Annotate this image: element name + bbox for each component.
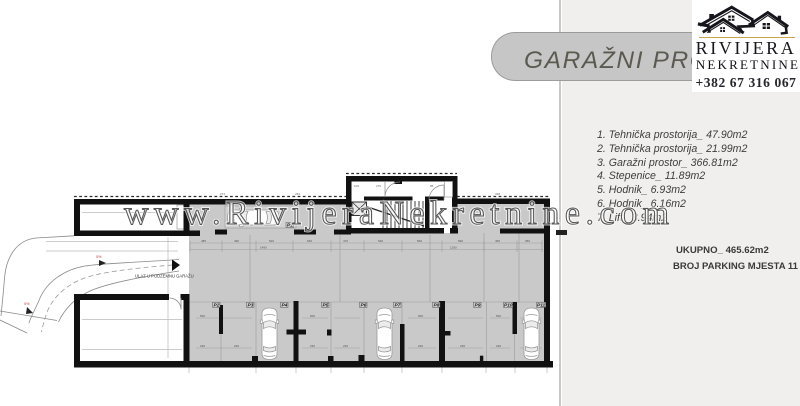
svg-text:5%: 5% (96, 255, 102, 259)
svg-text:230: 230 (234, 344, 239, 348)
svg-text:590: 590 (458, 239, 463, 243)
svg-text:500: 500 (496, 314, 501, 318)
svg-text:www.RivijeraNekretnine.com: www.RivijeraNekretnine.com (124, 195, 675, 232)
svg-text:85: 85 (430, 184, 434, 188)
svg-text:500: 500 (418, 314, 423, 318)
svg-text:560: 560 (417, 239, 422, 243)
svg-text:1490: 1490 (260, 246, 267, 250)
svg-text:P2: P2 (214, 303, 220, 309)
svg-text:P5: P5 (323, 303, 329, 309)
svg-text:ULAZ U PODZEMNU GARAŽU: ULAZ U PODZEMNU GARAŽU (135, 274, 194, 279)
svg-text:500: 500 (310, 314, 315, 318)
svg-text:P11: P11 (537, 303, 546, 309)
svg-text:P8: P8 (434, 303, 440, 309)
svg-text:P6: P6 (361, 303, 367, 309)
svg-text:230: 230 (460, 344, 465, 348)
svg-text:485: 485 (201, 239, 206, 243)
svg-text:230: 230 (418, 344, 423, 348)
svg-text:230: 230 (496, 344, 501, 348)
svg-text:P4: P4 (282, 303, 288, 309)
svg-text:530: 530 (378, 239, 383, 243)
svg-text:5%: 5% (24, 302, 30, 306)
svg-text:270: 270 (376, 184, 381, 188)
svg-text:490: 490 (234, 239, 239, 243)
svg-text:1260: 1260 (450, 246, 457, 250)
svg-text:470: 470 (343, 239, 348, 243)
svg-text:500: 500 (200, 314, 205, 318)
svg-text:P10: P10 (504, 303, 513, 309)
svg-text:P9: P9 (475, 303, 481, 309)
svg-text:230: 230 (343, 344, 348, 348)
svg-text:P3: P3 (248, 303, 254, 309)
svg-text:230: 230 (200, 344, 205, 348)
svg-text:530: 530 (307, 239, 312, 243)
svg-text:230: 230 (310, 344, 315, 348)
svg-text:P7: P7 (395, 303, 401, 309)
svg-text:465: 465 (495, 239, 500, 243)
svg-text:520: 520 (269, 239, 274, 243)
svg-text:350: 350 (525, 239, 530, 243)
svg-text:100: 100 (354, 184, 359, 188)
